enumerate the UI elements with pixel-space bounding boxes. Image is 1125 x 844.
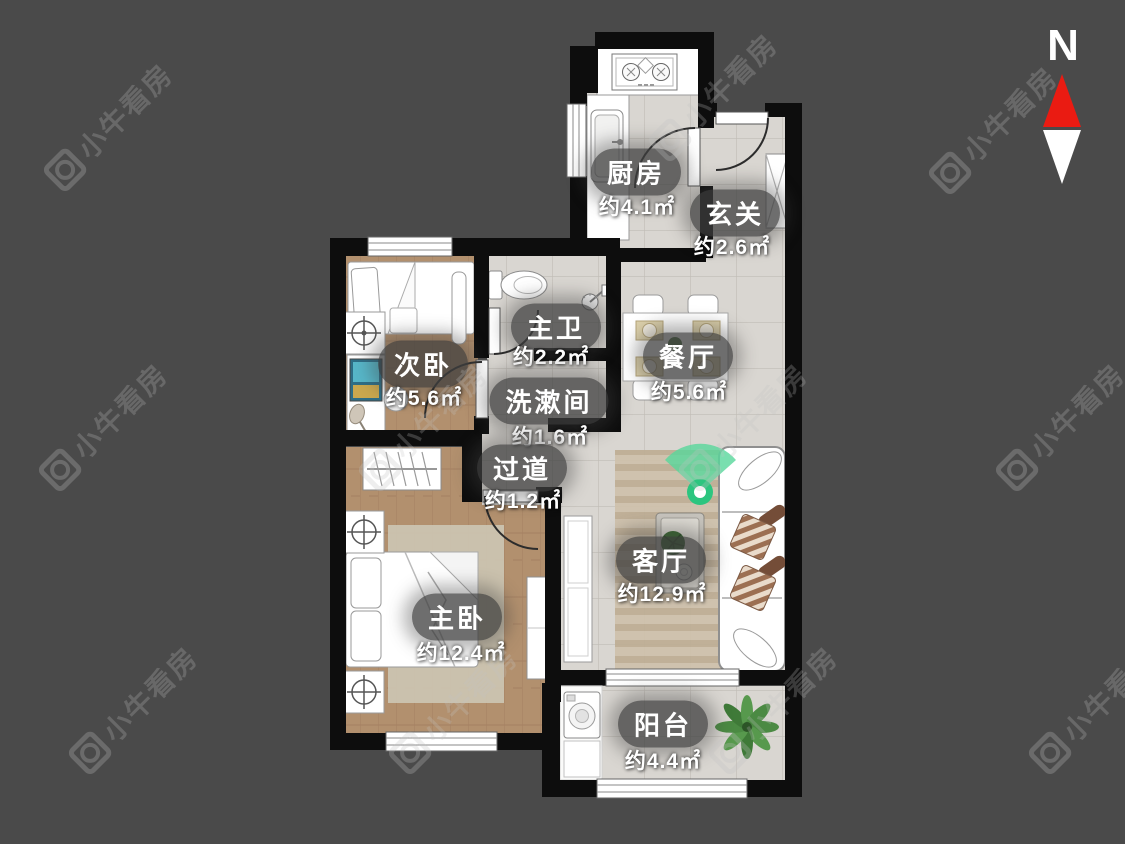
room-area-living-room: 约12.9㎡: [618, 578, 707, 608]
balcony-utility: [560, 686, 602, 780]
room-label-entry: 玄关: [690, 190, 780, 237]
sofa: [719, 445, 788, 674]
room-area-dining-room: 约5.6㎡: [651, 376, 727, 406]
room-label-washroom: 洗漱间: [489, 378, 608, 425]
room-area-balcony: 约4.4㎡: [625, 745, 701, 775]
bed2-cabinet: [452, 272, 466, 344]
toilet-icon: [489, 271, 547, 299]
bed2-ceiling-light-icon: [344, 312, 385, 354]
room-label-kitchen: 厨房: [591, 149, 681, 196]
stove-icon: [612, 54, 677, 90]
master-wardrobe: [363, 448, 441, 490]
room-area-master-bedroom: 约12.4㎡: [417, 637, 506, 667]
compass-arrow-icon: [1043, 74, 1081, 184]
room-area-kitchen: 约4.1㎡: [599, 191, 675, 221]
room-label-second-bedroom: 次卧: [378, 341, 468, 388]
room-area-entry: 约2.6㎡: [694, 231, 770, 261]
tv-console: [564, 516, 592, 662]
room-label-balcony: 阳台: [618, 701, 708, 748]
room-label-dining-room: 餐厅: [643, 333, 733, 380]
compass-north-label: N: [1047, 21, 1079, 71]
master-dresser: [527, 577, 546, 679]
room-label-living-room: 客厅: [616, 537, 706, 584]
floorplan-screen: 厨房 约4.1㎡ 玄关 约2.6㎡ 次卧 约5.6㎡ 主卫 约2.2㎡ 餐厅 约…: [0, 0, 1125, 844]
room-area-hallway: 约1.2㎡: [485, 485, 561, 515]
room-area-master-bathroom: 约2.2㎡: [513, 341, 589, 371]
balcony-plant-icon: [715, 695, 779, 759]
room-area-second-bedroom: 约5.6㎡: [386, 382, 462, 412]
room-label-master-bedroom: 主卧: [412, 594, 502, 641]
